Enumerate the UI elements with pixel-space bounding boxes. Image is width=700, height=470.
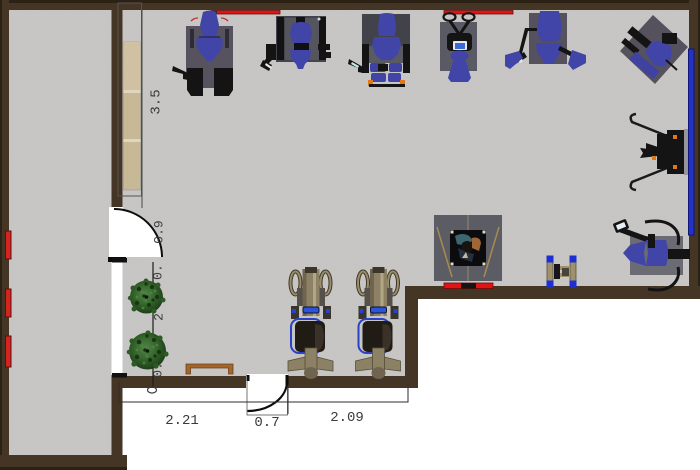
svg-text:2.09: 2.09	[330, 410, 364, 426]
svg-text:3.5: 3.5	[149, 89, 165, 114]
svg-text:0.9: 0.9	[151, 220, 166, 243]
svg-text:0.: 0.	[150, 264, 165, 280]
svg-text:0.7: 0.7	[254, 415, 279, 431]
svg-text:2.21: 2.21	[165, 413, 199, 429]
svg-text:2: 2	[151, 313, 166, 321]
